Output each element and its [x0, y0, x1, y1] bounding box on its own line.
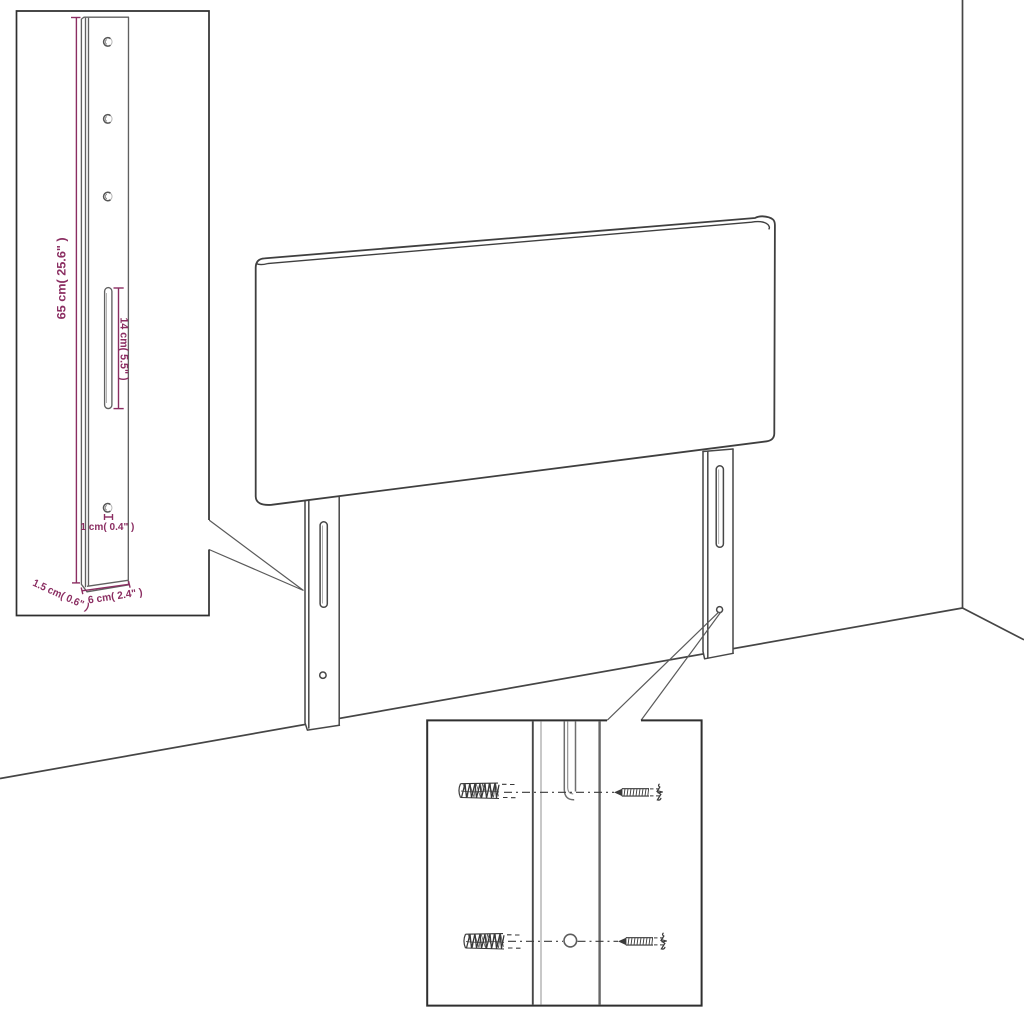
svg-text:1 cm( 0.4" ): 1 cm( 0.4" )	[80, 521, 134, 533]
svg-text:14 cm( 5.5" ): 14 cm( 5.5" )	[117, 318, 129, 381]
svg-text:65 cm( 25.6" ): 65 cm( 25.6" )	[55, 237, 69, 319]
